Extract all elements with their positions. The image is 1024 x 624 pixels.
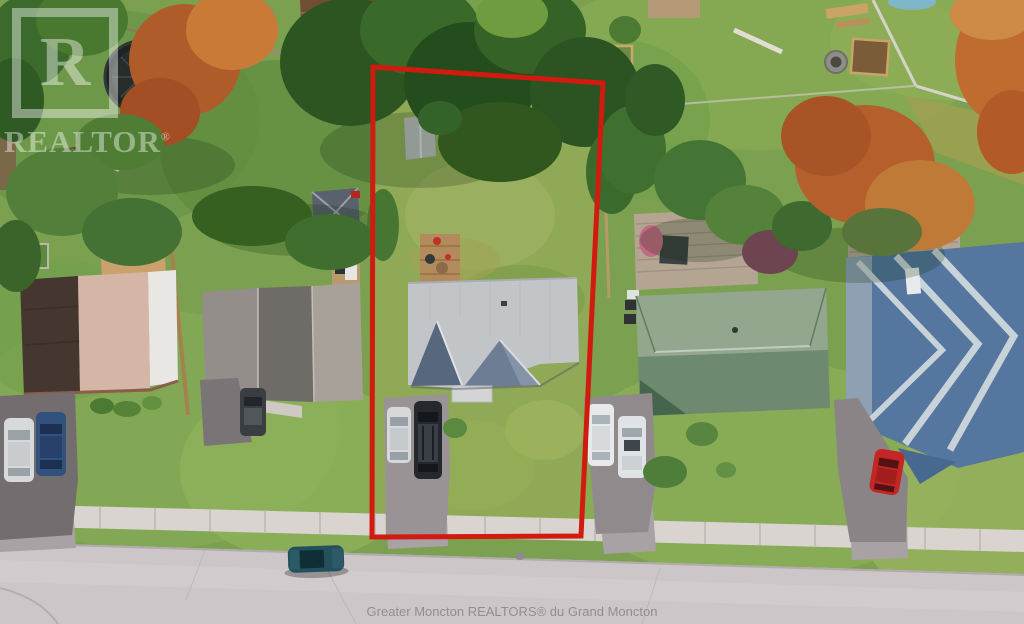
car-white-1	[588, 404, 614, 466]
car-suv-gray	[240, 388, 266, 436]
car-white-2	[618, 416, 646, 478]
car-blue	[36, 412, 66, 476]
lot-deck	[420, 234, 460, 286]
car-silver	[4, 418, 34, 482]
roof-white-section	[148, 270, 178, 386]
red-object	[351, 191, 360, 198]
roof-right	[312, 283, 363, 402]
car-silver-lot	[387, 407, 411, 463]
fire-pit	[825, 51, 847, 73]
roof-center	[258, 286, 314, 402]
aerial-scene	[0, 0, 1024, 624]
chimney	[501, 301, 507, 306]
roof-dark-section	[20, 276, 80, 396]
manhole-cover	[515, 552, 525, 560]
aerial-photo: R REALTOR® Greater Moncton REALTORS® du …	[0, 0, 1024, 624]
roof-pink-section	[78, 272, 150, 392]
chimney	[732, 327, 738, 333]
garden-bed	[851, 39, 889, 75]
deck-corner	[648, 0, 700, 18]
green-roof	[636, 288, 830, 416]
car-black-suv	[414, 401, 442, 479]
car-teal-street	[284, 545, 349, 579]
